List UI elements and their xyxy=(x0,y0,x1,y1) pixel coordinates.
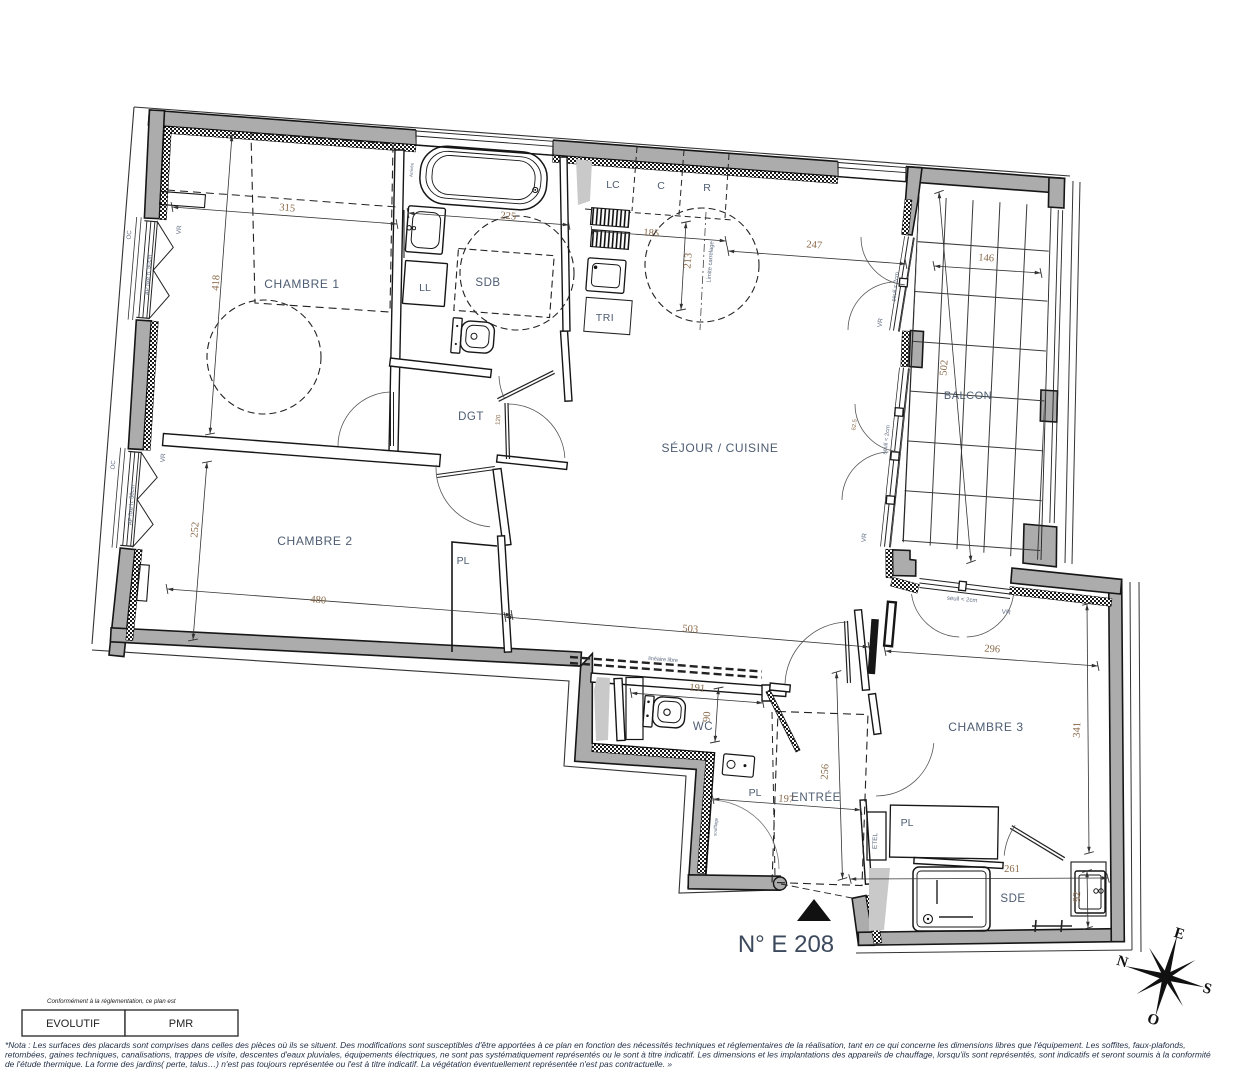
svg-text:LC: LC xyxy=(606,179,620,191)
svg-text:VR: VR xyxy=(860,533,868,543)
svg-text:SDB: SDB xyxy=(475,277,500,289)
svg-text:146: 146 xyxy=(978,253,994,265)
svg-text:502: 502 xyxy=(938,359,950,376)
svg-text:LL: LL xyxy=(419,282,431,294)
svg-text:VR: VR xyxy=(160,453,168,463)
svg-text:PL: PL xyxy=(901,817,914,829)
svg-text:191: 191 xyxy=(689,682,706,694)
svg-text:VR: VR xyxy=(876,318,884,328)
svg-text:PMR: PMR xyxy=(169,1018,194,1030)
svg-text:N: N xyxy=(1115,953,1130,972)
svg-text:247: 247 xyxy=(806,239,823,251)
svg-text:seuil < 2cm: seuil < 2cm xyxy=(947,596,978,605)
svg-text:R: R xyxy=(703,182,711,194)
svg-text:213: 213 xyxy=(682,252,694,269)
svg-text:92: 92 xyxy=(1072,891,1083,902)
svg-text:E: E xyxy=(1172,925,1186,943)
svg-text:SÉJOUR / CUISINE: SÉJOUR / CUISINE xyxy=(662,440,779,455)
svg-text:480: 480 xyxy=(310,594,327,606)
svg-text:261: 261 xyxy=(1004,864,1020,875)
svg-text:ENTRÉE: ENTRÉE xyxy=(791,791,841,804)
svg-text:62.5: 62.5 xyxy=(851,419,858,431)
svg-text:retombées, gaines techniques,: retombées, gaines techniques, canalisati… xyxy=(5,1050,1211,1060)
svg-text:197: 197 xyxy=(778,793,795,805)
svg-text:soufflage: soufflage xyxy=(712,817,718,836)
svg-text:EVOLUTIF: EVOLUTIF xyxy=(46,1018,100,1030)
svg-text:315: 315 xyxy=(279,202,296,214)
svg-text:Limite carrelage: Limite carrelage xyxy=(707,241,716,283)
svg-text:DGT: DGT xyxy=(458,411,484,423)
svg-text:PL: PL xyxy=(457,555,470,567)
svg-text:Arrivée: Arrivée xyxy=(409,162,415,177)
svg-text:OC: OC xyxy=(126,229,134,239)
svg-text:*Nota : Les surfaces des placa: *Nota : Les surfaces des placards sont c… xyxy=(5,1040,1186,1050)
svg-text:de l'étude thermique. La forme: de l'étude thermique. La forme des jardi… xyxy=(5,1059,672,1069)
svg-text:CHAMBRE 3: CHAMBRE 3 xyxy=(948,720,1023,734)
svg-text:Conformément à la réglementati: Conformément à la réglementation, ce pla… xyxy=(47,998,176,1005)
svg-text:BALCON: BALCON xyxy=(944,390,992,402)
svg-text:CHAMBRE 1: CHAMBRE 1 xyxy=(264,277,339,291)
svg-text:TRI: TRI xyxy=(596,312,614,324)
svg-text:120: 120 xyxy=(495,414,503,425)
svg-text:C: C xyxy=(657,180,665,192)
svg-text:225: 225 xyxy=(500,210,517,222)
svg-text:503: 503 xyxy=(682,623,699,635)
svg-text:CHAMBRE 2: CHAMBRE 2 xyxy=(277,534,352,548)
svg-text:S: S xyxy=(1201,980,1214,998)
svg-text:418: 418 xyxy=(210,275,222,291)
svg-text:SDE: SDE xyxy=(1000,893,1025,905)
svg-text:90: 90 xyxy=(702,711,714,722)
svg-text:VR: VR xyxy=(1001,609,1011,617)
svg-text:VR: VR xyxy=(176,225,184,235)
svg-text:ETEL: ETEL xyxy=(872,832,880,849)
svg-text:296: 296 xyxy=(984,643,1000,655)
svg-text:256: 256 xyxy=(819,764,831,780)
svg-text:N° E 208: N° E 208 xyxy=(738,931,834,958)
svg-text:PL: PL xyxy=(749,787,762,799)
svg-text:OC: OC xyxy=(110,459,118,469)
svg-text:185: 185 xyxy=(643,227,660,239)
svg-text:252: 252 xyxy=(189,521,201,538)
svg-text:linéaire libre: linéaire libre xyxy=(648,656,678,664)
svg-text:341: 341 xyxy=(1072,722,1084,738)
svg-text:O: O xyxy=(1145,1011,1161,1030)
